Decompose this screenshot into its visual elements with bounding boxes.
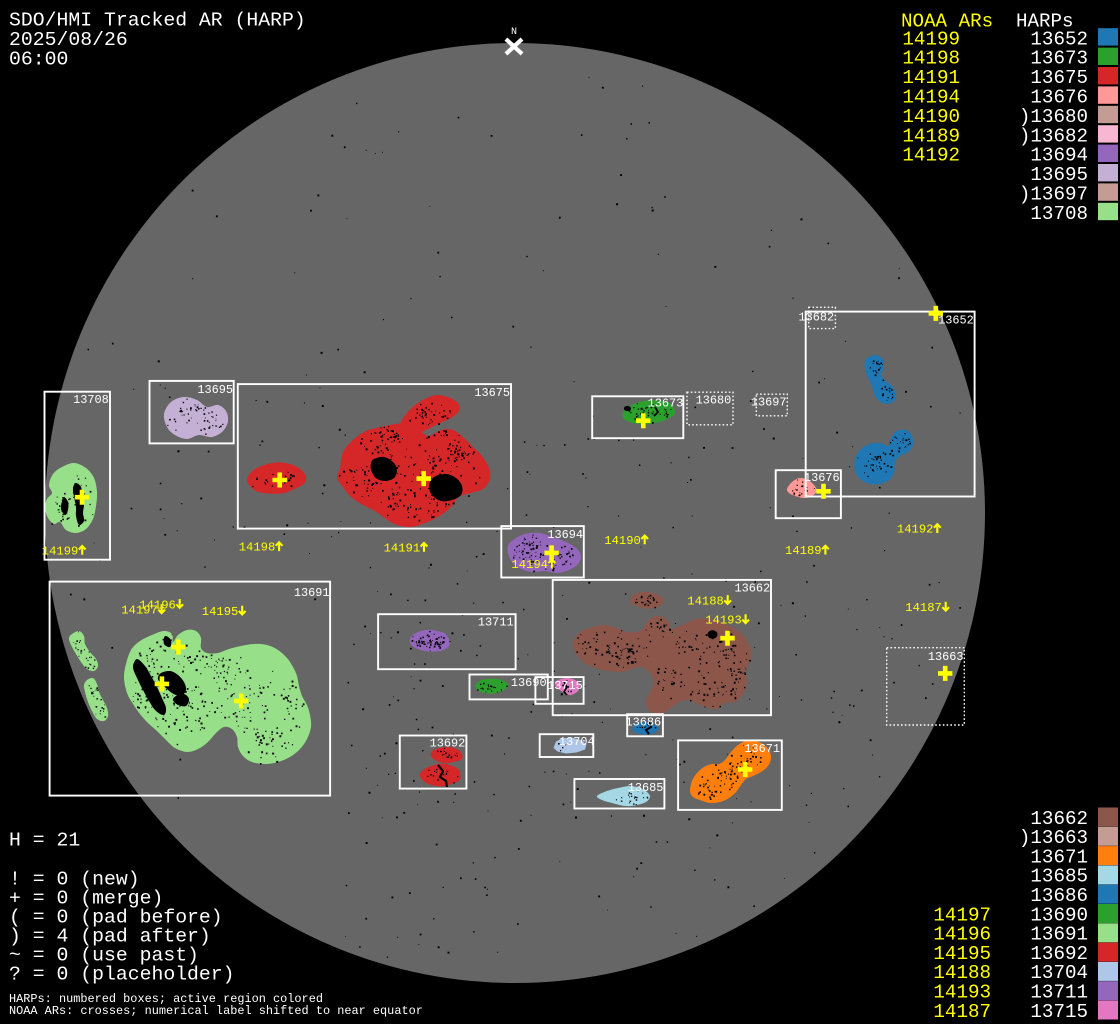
svg-text:13692: 13692 (430, 736, 466, 750)
svg-text:14189: 14189 (785, 544, 822, 558)
svg-text:13697: 13697 (751, 395, 787, 409)
svg-text:14187: 14187 (905, 601, 942, 615)
svg-text:14192: 14192 (897, 523, 934, 537)
svg-text:? = 0 (placeholder): ? = 0 (placeholder) (9, 964, 235, 986)
svg-text:14199: 14199 (42, 544, 79, 558)
svg-text:13676: 13676 (804, 471, 840, 485)
svg-text:N: N (511, 27, 517, 38)
svg-text:13715: 13715 (1030, 1001, 1088, 1023)
svg-text:13673: 13673 (648, 396, 684, 410)
svg-text:13652: 13652 (938, 314, 974, 328)
svg-text:14196: 14196 (139, 598, 176, 612)
svg-text:14187: 14187 (933, 1001, 991, 1023)
svg-text:13671: 13671 (744, 742, 780, 756)
svg-text:13695: 13695 (197, 383, 233, 397)
svg-text:13675: 13675 (474, 386, 510, 400)
svg-text:13663: 13663 (928, 650, 964, 664)
svg-text:13708: 13708 (73, 393, 109, 407)
svg-text:13694: 13694 (547, 528, 583, 542)
svg-text:14193: 14193 (705, 614, 742, 628)
svg-text:13708: 13708 (1030, 203, 1088, 225)
svg-text:06:00: 06:00 (9, 49, 68, 71)
svg-text:NOAA ARs: crosses; numerical l: NOAA ARs: crosses; numerical label shift… (9, 1004, 423, 1018)
svg-text:14190: 14190 (604, 534, 641, 548)
svg-text:13690: 13690 (511, 676, 547, 690)
svg-text:13680: 13680 (696, 393, 732, 407)
svg-text:14188: 14188 (687, 594, 724, 608)
svg-text:13711: 13711 (478, 615, 514, 629)
svg-text:H = 21: H = 21 (9, 830, 80, 852)
svg-text:14191: 14191 (384, 541, 421, 555)
svg-text:13682: 13682 (799, 310, 835, 324)
svg-text:14194: 14194 (511, 558, 548, 572)
svg-text:13691: 13691 (294, 586, 330, 600)
svg-text:13662: 13662 (735, 582, 771, 596)
svg-text:14192: 14192 (902, 145, 960, 167)
svg-text:14198: 14198 (239, 541, 276, 555)
svg-text:13686: 13686 (626, 715, 662, 729)
svg-text:13704: 13704 (559, 735, 595, 749)
svg-text:14195: 14195 (202, 605, 239, 619)
svg-text:13685: 13685 (628, 781, 664, 795)
svg-text:13715: 13715 (547, 679, 583, 693)
